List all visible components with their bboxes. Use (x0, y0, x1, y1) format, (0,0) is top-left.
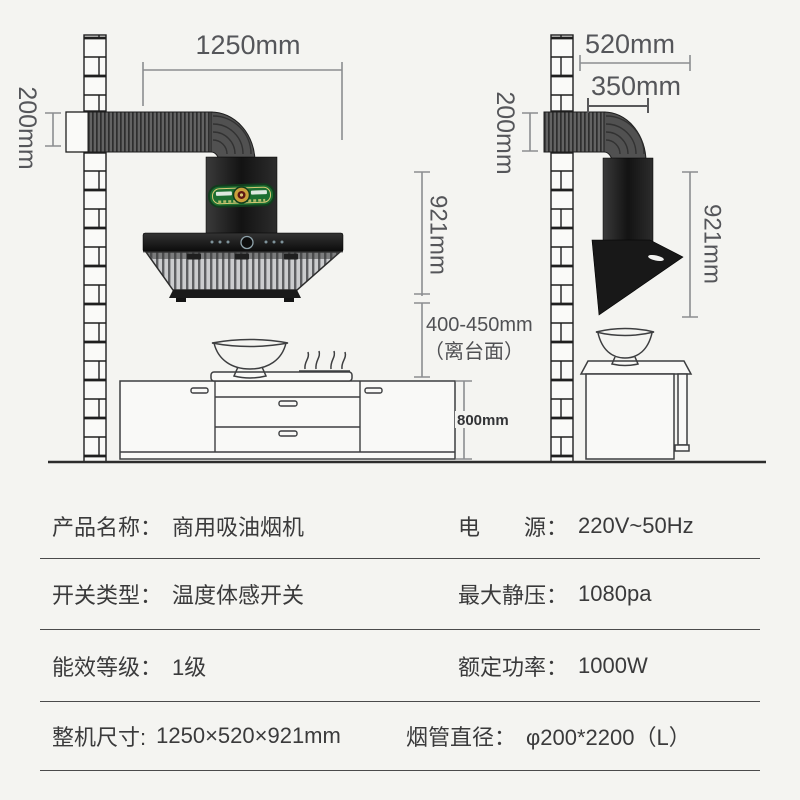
dim-duct-height-front: 200mm (13, 86, 61, 169)
spec-label: 额定功率： (458, 650, 568, 682)
dim-depth-label: 520mm (585, 29, 675, 59)
stove-stand (581, 329, 691, 460)
dim-hood-height-side: 921mm (682, 172, 726, 317)
spec-label: 最大静压： (458, 578, 568, 610)
spec-row-dimensions: 整机尺寸: 1250×520×921mm 烟管直径： φ200*2200（L） (40, 702, 760, 771)
spec-row-switch-type: 开关类型： 温度体感开关 最大静压： 1080pa (40, 559, 760, 630)
spec-label: 电 源： (458, 510, 568, 542)
spec-value: 1250×520×921mm (156, 723, 341, 749)
spec-value: 220V~50Hz (578, 513, 694, 539)
product-installation-infographic: 1250mm 200mm 921mm 400-450mm （离台面） 800mm (0, 0, 800, 800)
spec-row-energy-rating: 能效等级： 1级 额定功率： 1000W (40, 630, 760, 702)
spec-value: 1000W (578, 653, 648, 679)
spec-cell: 额定功率： 1000W (400, 650, 760, 682)
installation-diagram: 1250mm 200mm 921mm 400-450mm （离台面） 800mm (0, 0, 800, 472)
dim-depth-520: 520mm (580, 29, 690, 71)
spec-value: 1080pa (578, 581, 651, 607)
wall-column-left (84, 35, 106, 462)
dim-duct-height-side: 200mm (491, 91, 538, 174)
dim-counter-height-label: 800mm (457, 412, 509, 429)
spec-cell: 产品名称： 商用吸油烟机 (40, 510, 400, 542)
brand-badge (209, 184, 275, 207)
spec-value: 商用吸油烟机 (172, 510, 304, 542)
dim-width-label: 1250mm (195, 30, 300, 60)
hood-body-side (592, 240, 683, 315)
hood-chimney-side (603, 158, 653, 244)
spec-row-product-name: 产品名称： 商用吸油烟机 电 源： 220V~50Hz (40, 494, 760, 559)
spec-label: 开关类型： (52, 578, 162, 610)
dim-hood-height-side-label: 921mm (699, 204, 726, 284)
spec-value: φ200*2200（L） (526, 720, 691, 752)
spec-table: 产品名称： 商用吸油烟机 电 源： 220V~50Hz 开关类型： 温度体感开关… (40, 494, 760, 771)
spec-label: 能效等级： (52, 650, 162, 682)
gas-burner-flames (299, 351, 350, 371)
spec-label: 烟管直径： (406, 720, 516, 752)
wok-side (596, 329, 654, 366)
spec-value: 温度体感开关 (172, 578, 304, 610)
dim-duct-height-side-label: 200mm (491, 91, 519, 174)
dim-upper-depth-350: 350mm (588, 71, 681, 113)
dim-duct-height-label: 200mm (13, 86, 41, 169)
wall-column-right (551, 35, 573, 462)
dim-clearance-label: 400-450mm (426, 314, 533, 336)
hood-body-front (143, 233, 343, 302)
spec-cell: 开关类型： 温度体感开关 (40, 578, 400, 610)
spec-cell: 电 源： 220V~50Hz (400, 510, 760, 542)
dim-upper-depth-label: 350mm (591, 71, 681, 101)
spec-cell: 烟管直径： φ200*2200（L） (400, 720, 760, 752)
cooktop (211, 340, 352, 382)
front-view-diagram: 1250mm 200mm 921mm 400-450mm （离台面） 800mm (13, 30, 533, 462)
spec-cell: 最大静压： 1080pa (400, 578, 760, 610)
spec-value: 1级 (172, 650, 206, 682)
dim-hood-height-label: 921mm (425, 195, 452, 275)
spec-cell: 整机尺寸: 1250×520×921mm (40, 720, 400, 752)
spec-cell: 能效等级： 1级 (40, 650, 400, 682)
side-view-diagram: 520mm 350mm 200mm 921mm (491, 29, 726, 462)
dim-counter-height: 800mm (455, 381, 509, 459)
spec-label: 产品名称： (52, 510, 162, 542)
dim-hood-height-front: 921mm 400-450mm （离台面） (414, 172, 533, 377)
spec-label: 整机尺寸: (52, 720, 146, 752)
kitchen-cabinet (120, 381, 455, 459)
dim-clearance-note: （离台面） (424, 340, 524, 363)
